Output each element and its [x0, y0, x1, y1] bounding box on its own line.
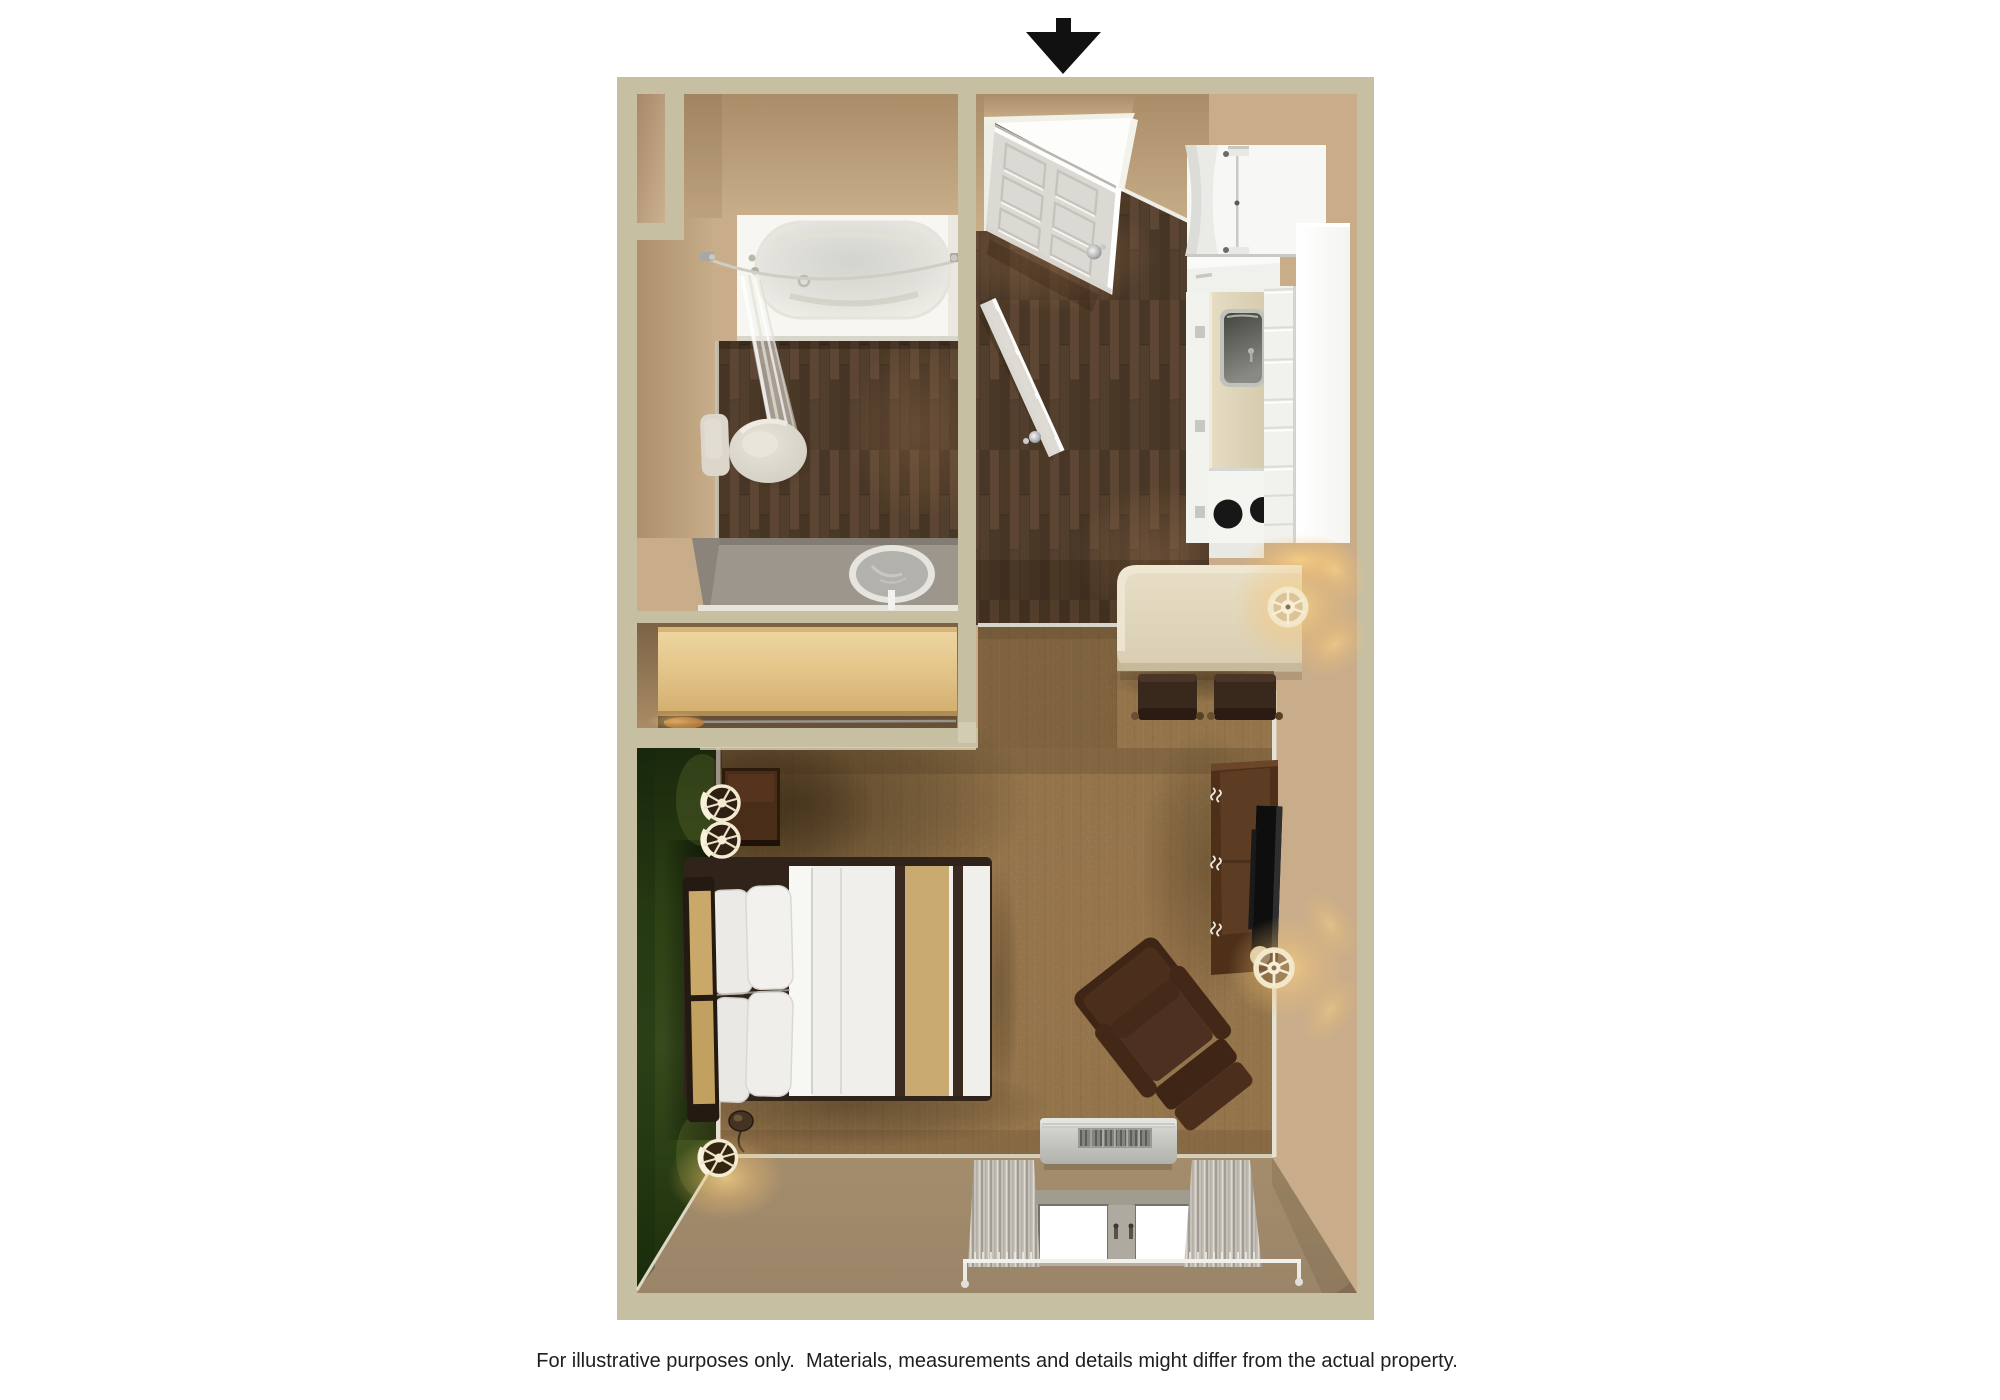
svg-text:For illustrative purposes only: For illustrative purposes only. Material… [536, 1350, 1458, 1372]
